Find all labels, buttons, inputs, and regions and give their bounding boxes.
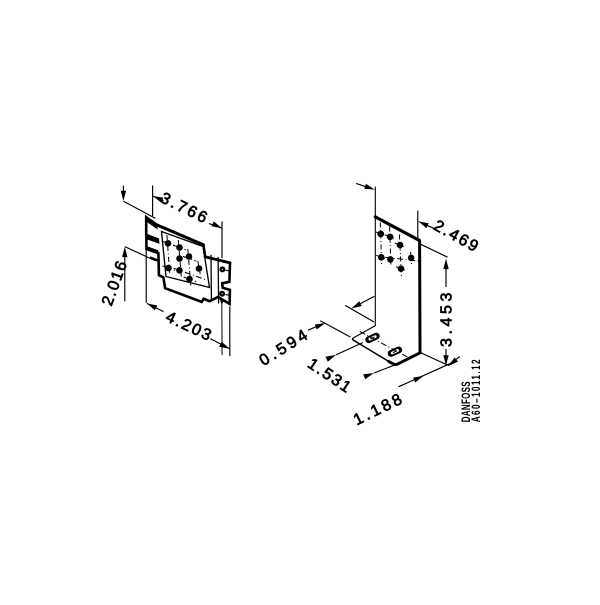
svg-text:A60–1011.12: A60–1011.12 [471, 358, 484, 422]
svg-text:3.453: 3.453 [438, 289, 455, 347]
